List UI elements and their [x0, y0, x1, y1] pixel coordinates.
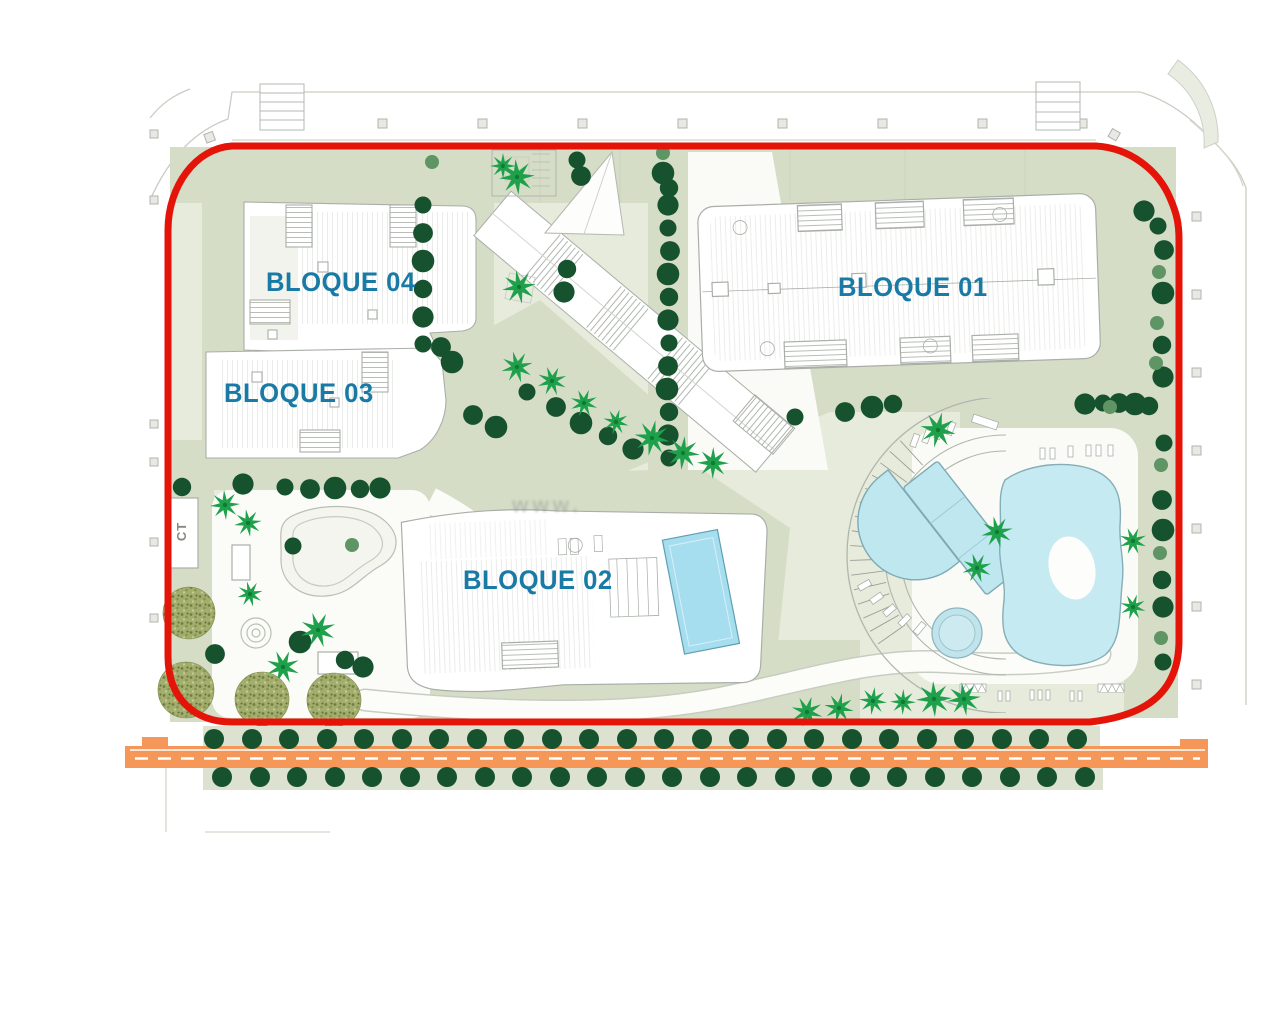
street-tree	[879, 729, 899, 749]
tree	[1133, 200, 1154, 221]
label-bloque-03: BLOQUE 03	[224, 378, 374, 409]
median-arc	[1168, 60, 1218, 148]
tree	[463, 405, 483, 425]
street-tree	[1029, 729, 1049, 749]
street-tree	[992, 729, 1012, 749]
palm-tree-center	[871, 699, 875, 703]
tree	[1150, 218, 1167, 235]
street-tree	[917, 729, 937, 749]
tree	[1154, 240, 1174, 260]
tree	[336, 651, 354, 669]
street-tree	[317, 729, 337, 749]
tree	[1150, 316, 1164, 330]
tree	[345, 538, 359, 552]
palm-tree-center	[550, 379, 554, 383]
street-tree	[925, 767, 945, 787]
palm-tree-center	[517, 285, 521, 289]
tree	[425, 155, 439, 169]
street-tree	[587, 767, 607, 787]
tree	[173, 478, 191, 496]
label-ct: CT	[174, 522, 189, 541]
palm-tree-center	[995, 530, 999, 534]
street-tree	[287, 767, 307, 787]
tree	[1154, 458, 1168, 472]
street-tree	[437, 767, 457, 787]
palm-tree-center	[711, 461, 715, 465]
palm-tree-center	[936, 428, 940, 432]
palm-tree-center	[901, 700, 905, 704]
tree	[660, 179, 678, 197]
palm-tree-center	[614, 420, 618, 424]
street-tree	[354, 729, 374, 749]
tree	[658, 356, 678, 376]
tree	[884, 395, 902, 413]
tree	[1153, 546, 1167, 560]
tree	[412, 306, 433, 327]
tree	[861, 396, 884, 419]
street-tree	[550, 767, 570, 787]
tree	[277, 479, 294, 496]
tree	[441, 351, 464, 374]
tree	[571, 166, 591, 186]
label-bloque-02: BLOQUE 02	[463, 565, 613, 596]
tree	[285, 538, 302, 555]
tree	[1155, 654, 1172, 671]
tree	[1149, 356, 1163, 370]
street-tree	[887, 767, 907, 787]
street-tree	[850, 767, 870, 787]
tree	[546, 397, 566, 417]
street-tree	[204, 729, 224, 749]
palm-tree-center	[246, 521, 250, 525]
street-tree	[737, 767, 757, 787]
palm-tree-center	[650, 436, 654, 440]
street-tree	[842, 729, 862, 749]
tree	[657, 263, 680, 286]
street-tree	[242, 729, 262, 749]
palm-tree-center	[281, 665, 285, 669]
label-bloque-01: BLOQUE 01	[838, 272, 988, 303]
palm-tree-center	[248, 592, 252, 596]
street-tree	[662, 767, 682, 787]
street-tree	[212, 767, 232, 787]
tree	[1152, 519, 1175, 542]
building-bloque-02	[401, 501, 772, 694]
street-tree	[279, 729, 299, 749]
label-bloque-04: BLOQUE 04	[266, 267, 416, 298]
tree	[661, 335, 678, 352]
site-plan-page: BLOQUE 04 BLOQUE 03 BLOQUE 01 BLOQUE 02 …	[0, 0, 1280, 1024]
street-tree	[362, 767, 382, 787]
tree	[415, 197, 432, 214]
tree	[1074, 393, 1095, 414]
street-tree	[625, 767, 645, 787]
street-tree	[475, 767, 495, 787]
pool-round	[932, 608, 982, 658]
street-tree	[1037, 767, 1057, 787]
palm-tree-center	[1131, 539, 1135, 543]
site-plan-drawing	[0, 0, 1280, 1024]
tree	[1154, 631, 1168, 645]
street-tree	[1000, 767, 1020, 787]
palm-tree-center	[316, 628, 320, 632]
tree	[657, 309, 678, 330]
street-tree	[429, 729, 449, 749]
street-tree	[392, 729, 412, 749]
tree	[351, 480, 369, 498]
tree	[660, 403, 678, 421]
palm-tree-center	[962, 697, 966, 701]
tree	[553, 281, 574, 302]
tree	[622, 438, 643, 459]
tree	[1156, 435, 1173, 452]
street-tree	[1067, 729, 1087, 749]
street-tree	[512, 767, 532, 787]
street-tree	[962, 767, 982, 787]
tree	[570, 412, 593, 435]
street-tree	[542, 729, 562, 749]
tree	[1103, 400, 1117, 414]
tree	[1152, 490, 1172, 510]
tree	[519, 384, 536, 401]
tree	[300, 479, 320, 499]
street-tree	[617, 729, 637, 749]
tree	[324, 477, 347, 500]
tree	[1153, 336, 1171, 354]
palm-tree-center	[975, 566, 979, 570]
street-tree	[250, 767, 270, 787]
street-tree	[504, 729, 524, 749]
tree	[660, 241, 680, 261]
palm-tree-center	[515, 175, 519, 179]
street-tree	[954, 729, 974, 749]
palm-tree-center	[932, 697, 936, 701]
palm-tree-center	[805, 710, 809, 714]
tree	[1153, 571, 1171, 589]
street-tree	[692, 729, 712, 749]
watermark-text: www.	[512, 494, 582, 518]
tree	[660, 220, 677, 237]
palm-tree-center	[223, 503, 227, 507]
tree	[415, 336, 432, 353]
palm-tree-center	[582, 401, 586, 405]
tree	[1152, 282, 1175, 305]
palm-tree-center	[837, 706, 841, 710]
tree	[569, 152, 586, 169]
tree	[1140, 397, 1158, 415]
tree	[835, 402, 855, 422]
tree	[232, 473, 253, 494]
street-tree	[1075, 767, 1095, 787]
palm-tree-center	[681, 451, 685, 455]
street-tree	[467, 729, 487, 749]
tree	[369, 477, 390, 498]
street-tree	[654, 729, 674, 749]
street-tree	[700, 767, 720, 787]
street-tree	[579, 729, 599, 749]
street-tree	[325, 767, 345, 787]
street-tree	[804, 729, 824, 749]
tree	[352, 656, 373, 677]
tree	[660, 288, 678, 306]
tree	[413, 223, 433, 243]
street-tree	[767, 729, 787, 749]
street-tree	[775, 767, 795, 787]
palm-tree-center	[501, 164, 505, 168]
tree	[787, 409, 804, 426]
olive-tree	[235, 672, 289, 726]
tree	[414, 280, 432, 298]
tree	[656, 378, 679, 401]
tree	[205, 644, 225, 664]
tree	[485, 416, 508, 439]
palm-tree-center	[515, 365, 519, 369]
tree	[657, 194, 678, 215]
tree	[558, 260, 576, 278]
tree	[1152, 265, 1166, 279]
tree	[1152, 596, 1173, 617]
street-tree	[812, 767, 832, 787]
palm-tree-center	[1131, 605, 1135, 609]
street-tree	[729, 729, 749, 749]
street-tree	[400, 767, 420, 787]
